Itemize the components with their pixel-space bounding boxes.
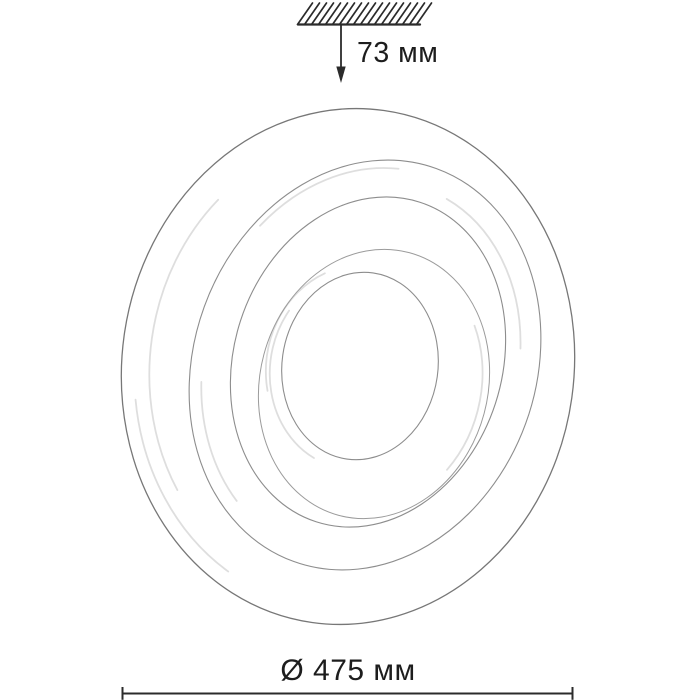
diameter-dimension-label: Ø 475 мм xyxy=(280,654,415,687)
arrowhead-down xyxy=(336,67,345,84)
height-dimension-label: 73 мм xyxy=(357,37,438,69)
diameter-dimension-line xyxy=(122,687,573,700)
ring-3 xyxy=(189,161,548,563)
ceiling-light-dimension-diagram: 73 мм Ø 475 мм xyxy=(0,0,700,700)
fixture-rings xyxy=(88,79,608,654)
diagram-svg: 73 мм Ø 475 мм xyxy=(0,0,700,700)
ring-4 xyxy=(229,223,520,545)
ceiling-hatch-symbol xyxy=(298,3,432,25)
height-dimension-arrow xyxy=(336,25,345,83)
ring-2 xyxy=(133,110,597,620)
